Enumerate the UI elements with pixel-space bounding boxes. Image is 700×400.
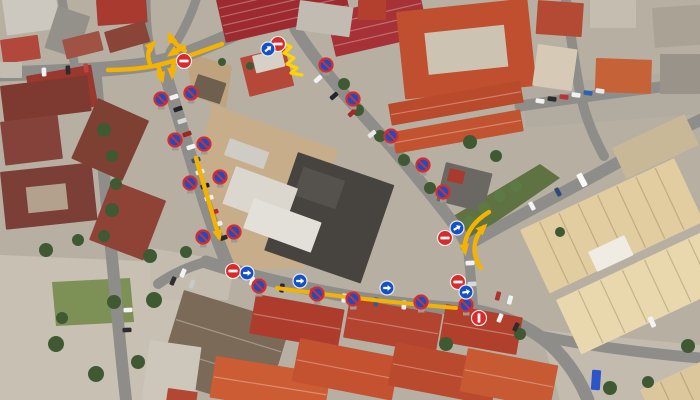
vehicle — [83, 63, 89, 72]
tree — [463, 135, 477, 149]
tree — [105, 203, 119, 217]
vehicle — [122, 328, 131, 333]
tree — [246, 62, 254, 70]
tree — [97, 123, 111, 137]
mandatory-direction-sign-icon — [261, 42, 275, 56]
mandatory-direction-sign-icon — [240, 266, 254, 280]
tree — [146, 292, 162, 308]
vehicle — [465, 260, 474, 265]
mandatory-direction-sign-icon — [380, 281, 394, 295]
tree — [642, 376, 654, 388]
building — [595, 58, 652, 94]
no-entry-sign-icon — [438, 231, 453, 246]
tree — [106, 150, 118, 162]
tree — [48, 336, 64, 352]
building — [590, 0, 636, 28]
building — [652, 5, 700, 48]
no-entry-vertical-sign-icon — [472, 311, 487, 326]
building — [0, 115, 63, 166]
vehicle — [591, 370, 601, 391]
tree — [110, 178, 122, 190]
vehicle — [123, 308, 132, 313]
tree — [39, 243, 53, 257]
tree — [180, 246, 192, 258]
tree — [424, 182, 436, 194]
tree — [490, 150, 502, 162]
tree — [56, 312, 68, 324]
building — [0, 62, 22, 78]
map-image — [0, 0, 700, 400]
vehicle — [65, 65, 70, 74]
tree — [603, 381, 617, 395]
vehicle — [41, 67, 46, 76]
roundabout-exit-south-right — [172, 62, 174, 75]
tree — [72, 234, 84, 246]
tree — [510, 180, 522, 192]
building — [532, 44, 577, 91]
tree — [218, 58, 226, 66]
building — [536, 0, 584, 37]
tree — [555, 227, 565, 237]
building — [358, 0, 386, 20]
tree — [494, 190, 506, 202]
tree — [398, 154, 410, 166]
building — [660, 54, 700, 94]
tree — [107, 295, 121, 309]
tree — [143, 249, 157, 263]
mandatory-direction-sign-icon — [293, 274, 307, 288]
mandatory-direction-sign-icon — [459, 285, 473, 299]
map-canvas — [0, 0, 700, 400]
tree — [439, 337, 453, 351]
no-entry-sign-icon — [226, 264, 241, 279]
tree — [681, 339, 695, 353]
building — [0, 162, 98, 229]
tree — [88, 366, 104, 382]
tree — [338, 78, 350, 90]
tree — [98, 230, 110, 242]
mandatory-direction-sign-icon — [450, 221, 464, 235]
no-entry-sign-icon — [177, 54, 192, 69]
tree — [131, 355, 145, 369]
